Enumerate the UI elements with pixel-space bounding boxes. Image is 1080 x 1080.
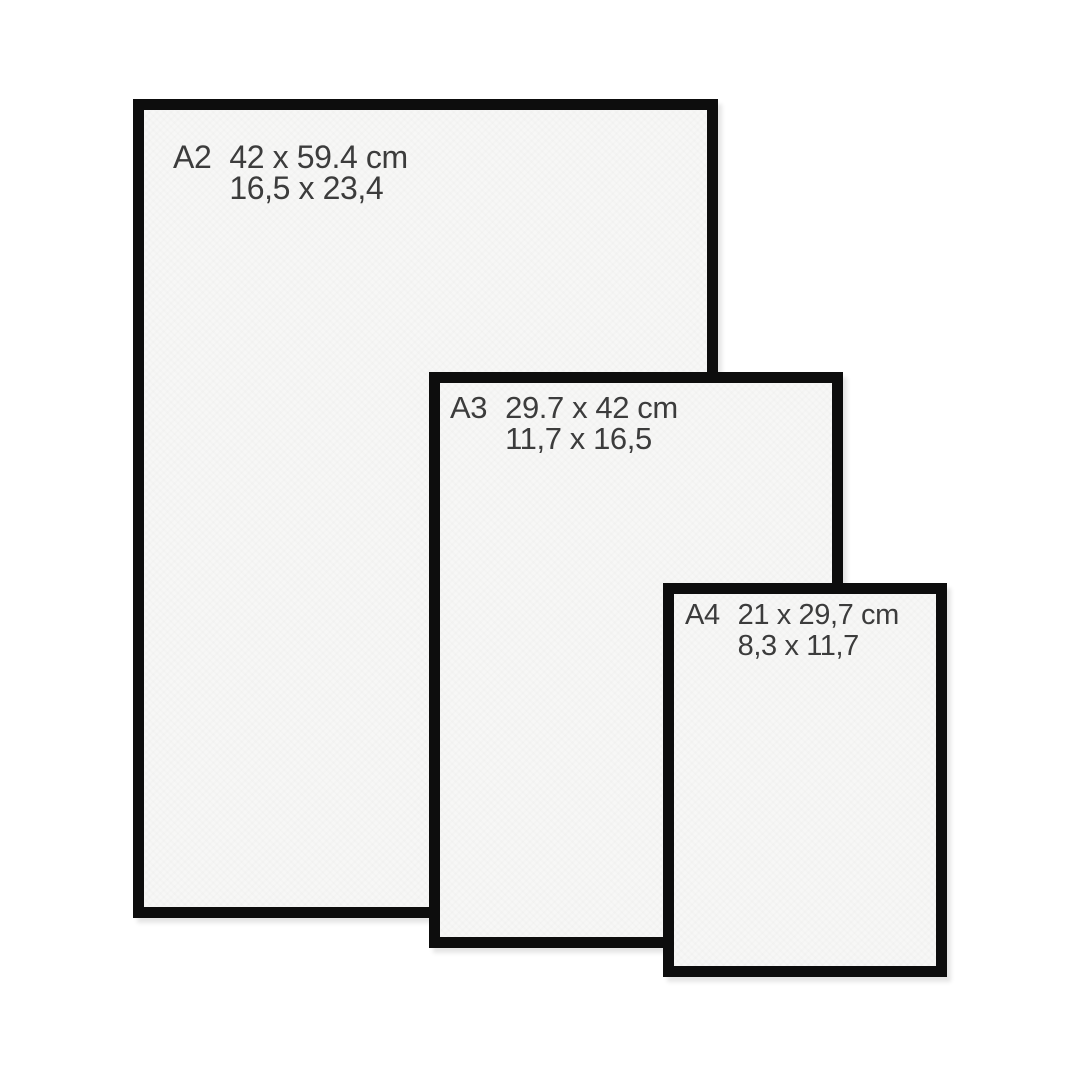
frame-a4-size-name: A4 [685,600,720,631]
frame-a3-size-name: A3 [450,392,487,423]
frame-a3-size-cm: 29.7 x 42 cm [505,392,678,423]
frame-a2-size-name: A2 [173,142,211,173]
frame-a2-size-inches: 16,5 x 23,4 [229,173,383,204]
frame-a4-dimensions: 21 x 29,7 cm 8,3 x 11,7 [738,600,899,662]
frame-a4-label: A4 21 x 29,7 cm 8,3 x 11,7 [685,600,899,662]
frame-a3-size-inches: 11,7 x 16,5 [505,423,652,454]
frame-a3-dimensions: 29.7 x 42 cm 11,7 x 16,5 [505,392,678,454]
frame-a2-label: A2 42 x 59.4 cm 16,5 x 23,4 [173,142,408,204]
frame-a3-label: A3 29.7 x 42 cm 11,7 x 16,5 [450,392,678,454]
paper-size-comparison: A2 42 x 59.4 cm 16,5 x 23,4 A3 29.7 x 42… [0,0,1080,1080]
frame-a2-dimensions: 42 x 59.4 cm 16,5 x 23,4 [229,142,407,204]
frame-a4: A4 21 x 29,7 cm 8,3 x 11,7 [663,583,947,977]
frame-a4-size-inches: 8,3 x 11,7 [738,631,859,662]
frame-a2-size-cm: 42 x 59.4 cm [229,142,407,173]
frame-a4-size-cm: 21 x 29,7 cm [738,600,899,631]
